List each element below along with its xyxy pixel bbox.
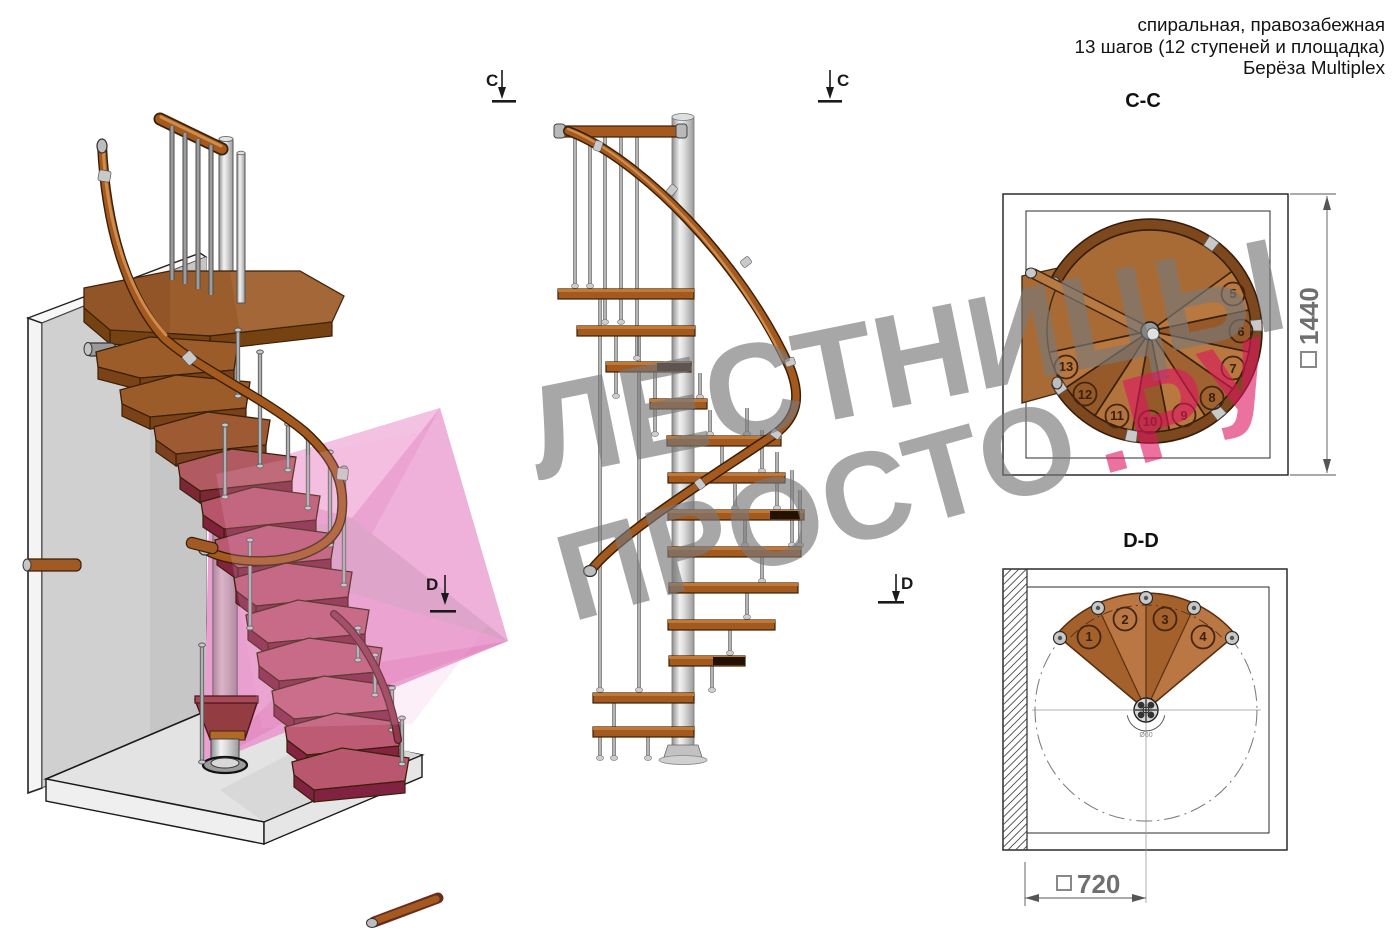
svg-text:C: C: [837, 71, 849, 90]
svg-text:D-D: D-D: [1123, 530, 1159, 552]
svg-text:720: 720: [1077, 869, 1120, 899]
svg-text:2: 2: [1121, 612, 1128, 627]
svg-text:C: C: [486, 71, 498, 90]
svg-text:D: D: [901, 574, 913, 593]
svg-text:1: 1: [1085, 629, 1092, 644]
svg-text:C-C: C-C: [1125, 90, 1161, 112]
svg-text:Ø60: Ø60: [1139, 732, 1152, 739]
svg-text:3: 3: [1161, 612, 1168, 627]
svg-text:1440: 1440: [1294, 287, 1324, 345]
svg-text:4: 4: [1199, 629, 1207, 644]
svg-text:D: D: [426, 575, 438, 594]
